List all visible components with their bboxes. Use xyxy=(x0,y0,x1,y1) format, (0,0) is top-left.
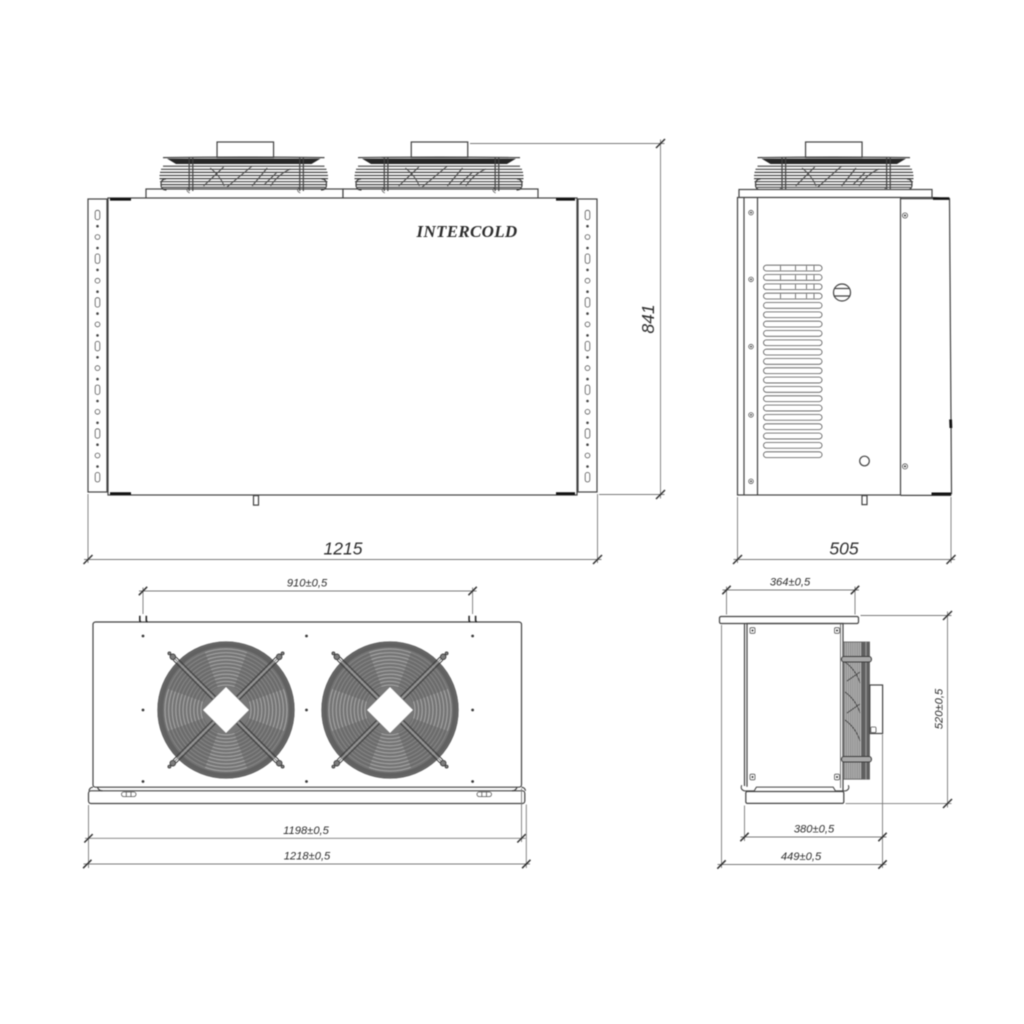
svg-text:449±0,5: 449±0,5 xyxy=(781,851,822,863)
svg-text:841: 841 xyxy=(638,304,658,333)
svg-text:520±0,5: 520±0,5 xyxy=(934,688,946,729)
svg-text:1215: 1215 xyxy=(324,539,363,559)
svg-text:INTERCOLD: INTERCOLD xyxy=(416,222,518,241)
svg-text:364±0,5: 364±0,5 xyxy=(770,577,811,589)
svg-text:380±0,5: 380±0,5 xyxy=(794,824,835,836)
svg-text:910±0,5: 910±0,5 xyxy=(287,578,328,590)
svg-text:1218±0,5: 1218±0,5 xyxy=(284,851,331,863)
svg-text:505: 505 xyxy=(829,539,858,559)
svg-text:1198±0,5: 1198±0,5 xyxy=(283,825,330,837)
